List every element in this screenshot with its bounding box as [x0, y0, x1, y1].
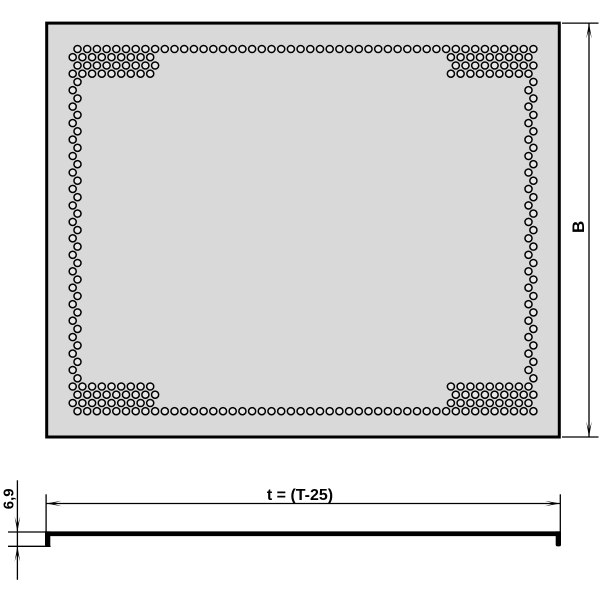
svg-text:6,9: 6,9 [0, 488, 17, 509]
svg-text:B: B [569, 221, 588, 233]
svg-text:t = (T-25): t = (T-25) [267, 487, 333, 504]
